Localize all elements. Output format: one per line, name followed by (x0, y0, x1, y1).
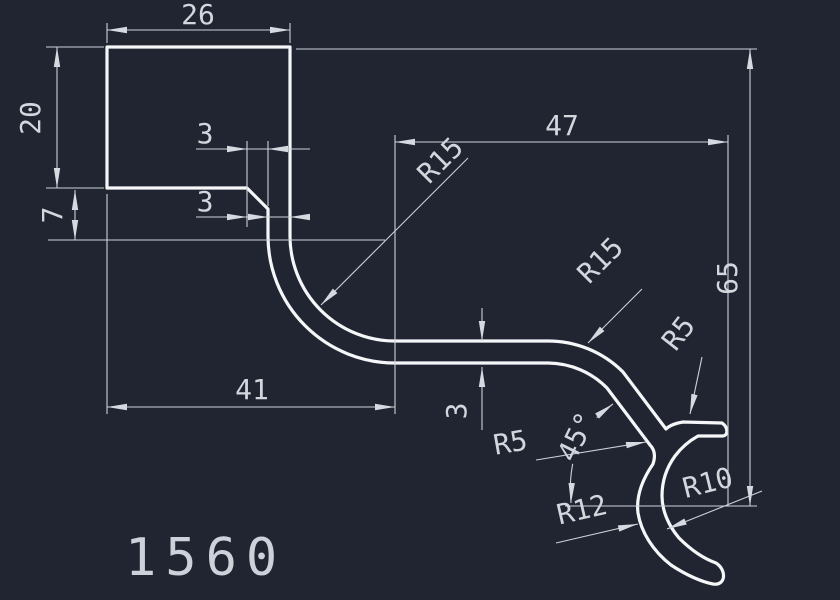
dim-mid-width-label: 47 (545, 109, 579, 142)
dim-chamfer-label: 3 (197, 117, 214, 150)
dim-left-offset-label: 7 (36, 207, 69, 224)
r5-crotch-label: R5 (491, 423, 530, 461)
cad-drawing-canvas: 26 20 7 3 3 47 65 (0, 0, 840, 600)
dim-left-height-label: 20 (14, 101, 47, 135)
dim-strip-thickness-label: 3 (440, 403, 473, 420)
dim-bottom-width-label: 41 (235, 373, 269, 406)
dim-wall-label: 3 (197, 185, 214, 218)
part-number-label: 1560 (125, 528, 286, 588)
dim-right-height-label: 65 (711, 261, 744, 295)
dim-top-width-label: 26 (181, 0, 215, 31)
